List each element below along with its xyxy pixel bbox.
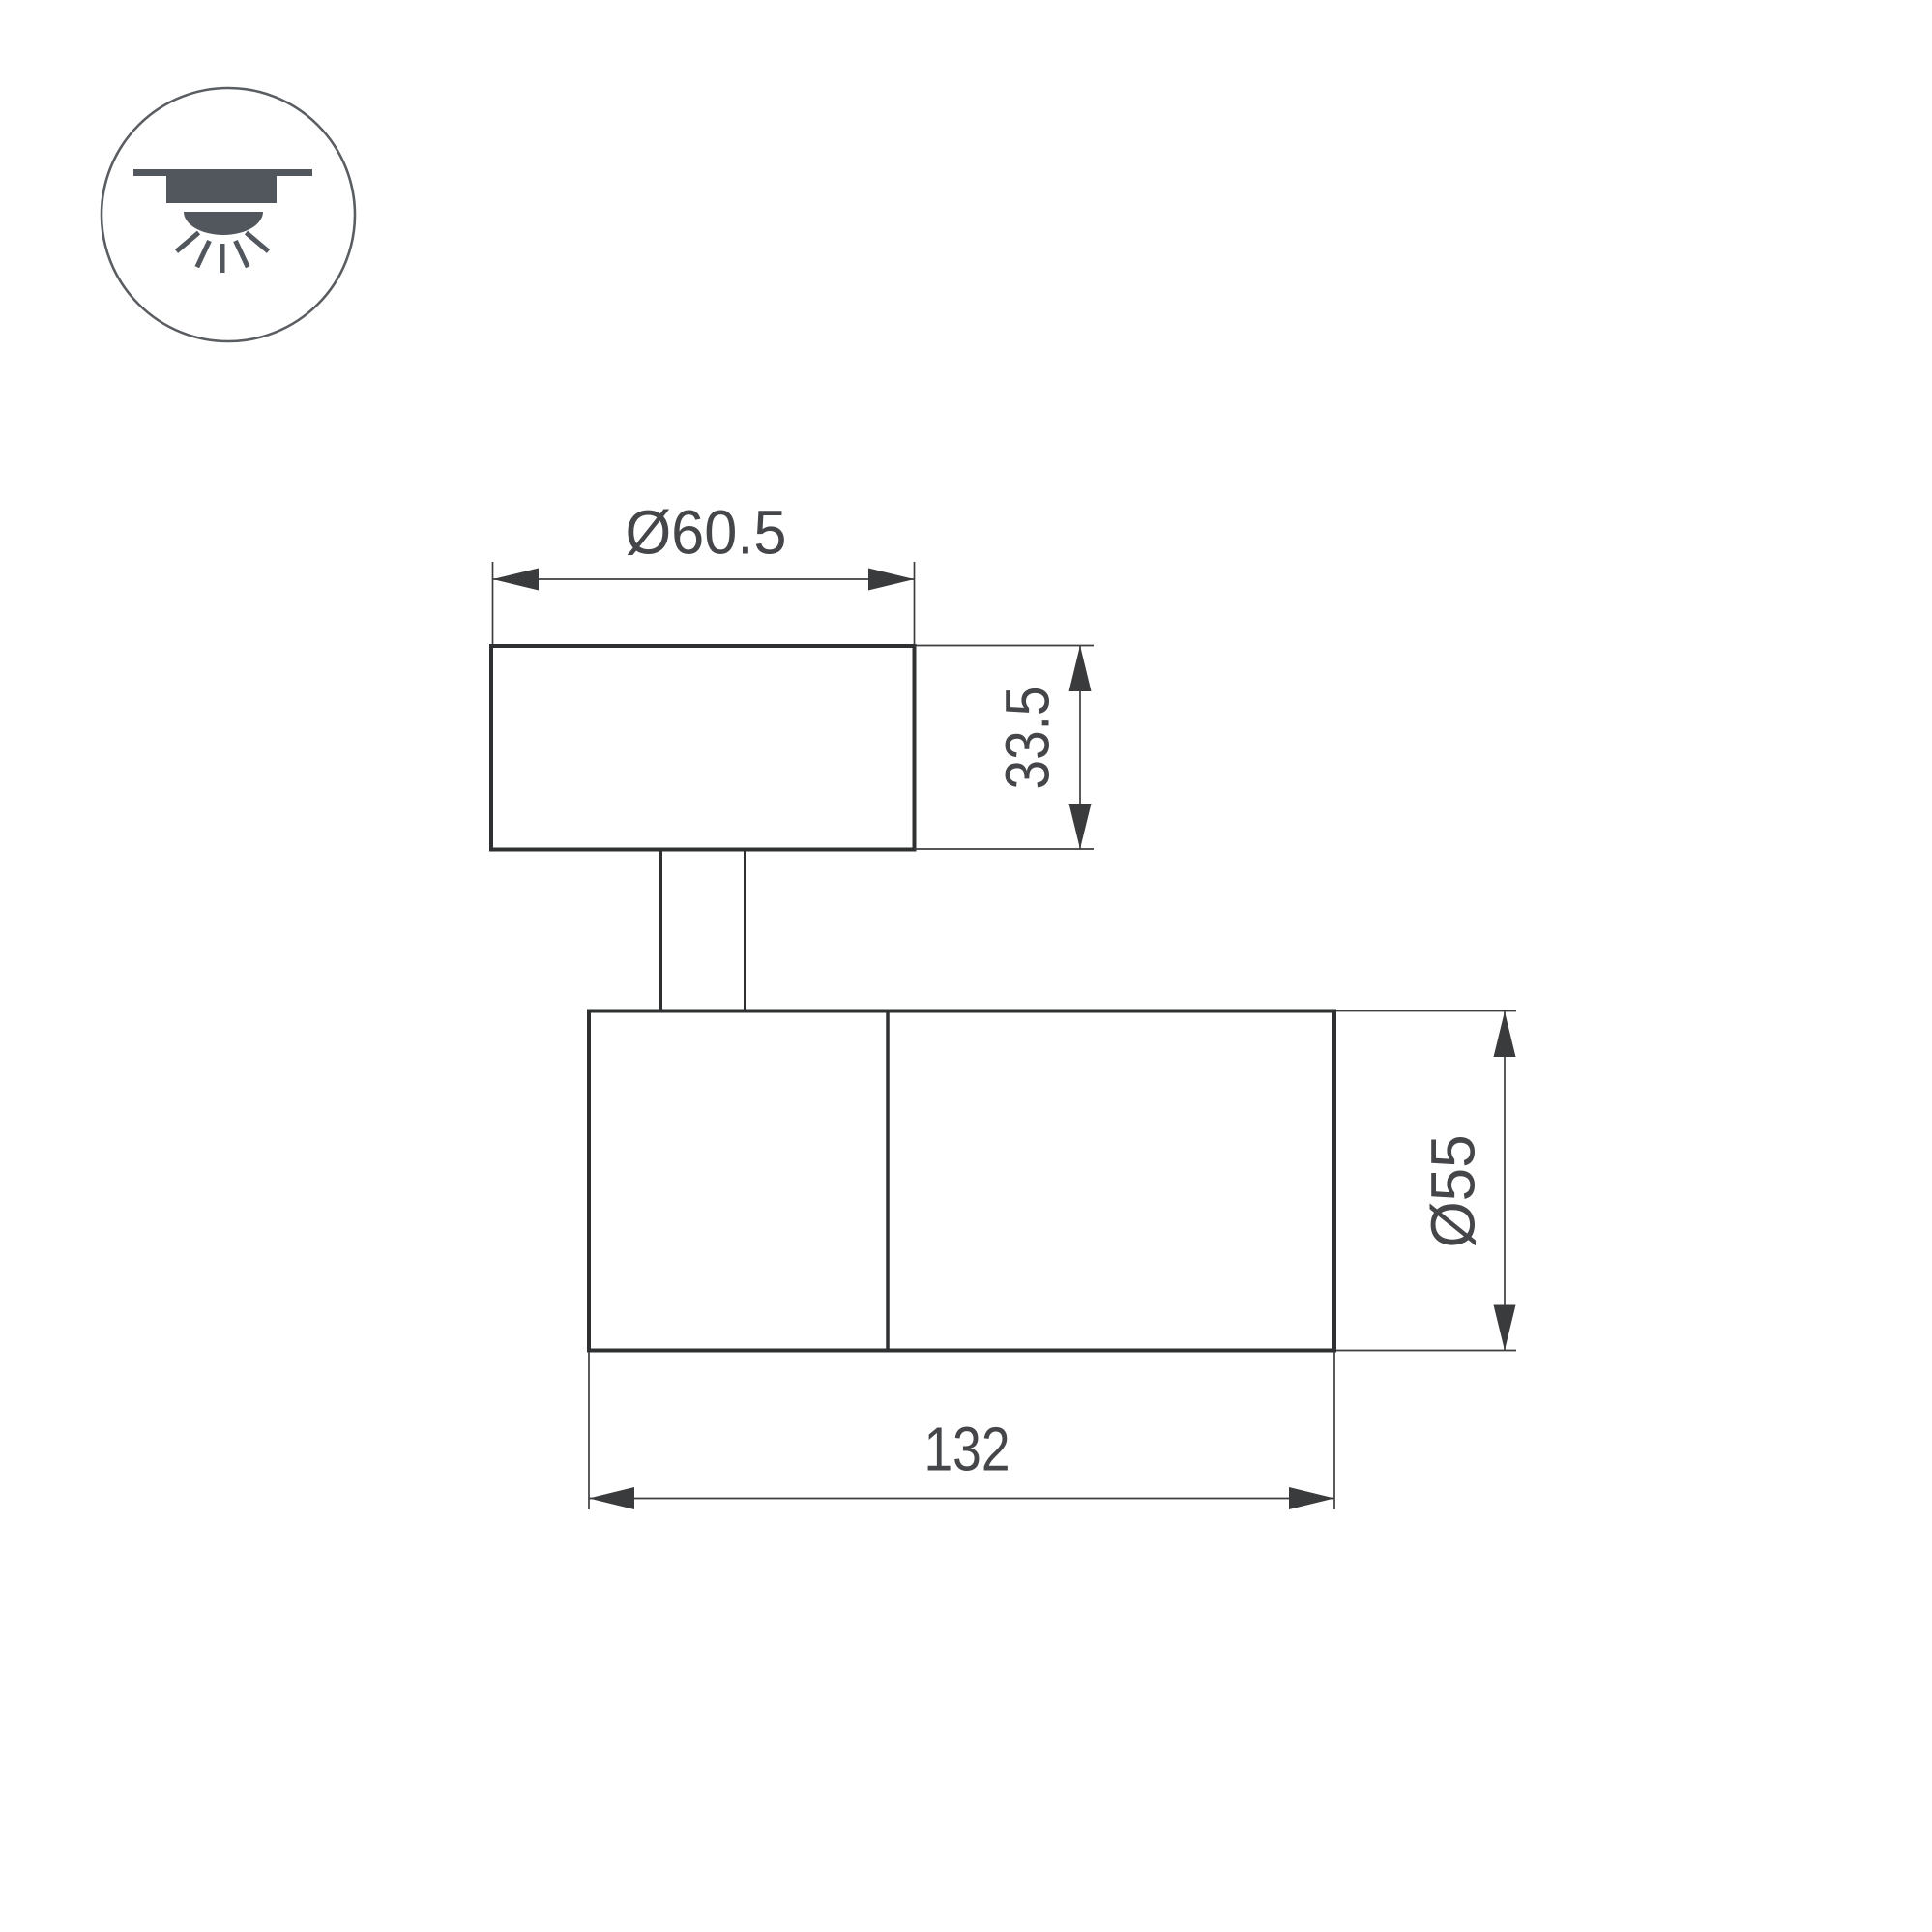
dimension-canopy-height: 33.5 bbox=[915, 646, 1094, 850]
fixture-drawing bbox=[491, 646, 1334, 1351]
dimension-label-body-diameter: Ø55 bbox=[1418, 1135, 1487, 1248]
arrowhead-left bbox=[493, 569, 540, 591]
fixture-base-icon bbox=[166, 176, 277, 203]
dimension-label-canopy-diameter: Ø60.5 bbox=[626, 497, 787, 567]
arrowhead-up bbox=[1069, 646, 1092, 692]
arrowhead-right bbox=[1289, 1487, 1334, 1509]
arrowhead-right bbox=[868, 569, 915, 591]
body-outline bbox=[589, 1011, 1334, 1351]
dimension-body-diameter: Ø55 bbox=[1336, 1011, 1516, 1351]
dimension-label-body-length: 132 bbox=[924, 1414, 1010, 1483]
dimension-body-length: 132 bbox=[589, 1352, 1334, 1509]
canopy-outline bbox=[491, 646, 915, 850]
dimension-canopy-diameter: Ø60.5 bbox=[493, 497, 915, 644]
arrowhead-left bbox=[589, 1487, 634, 1509]
arrowhead-down bbox=[1494, 1305, 1516, 1351]
arrowhead-down bbox=[1069, 804, 1092, 849]
dimension-drawing-canvas: Ø60.5 33.5 Ø55 132 bbox=[0, 0, 1932, 1932]
dimension-label-canopy-height: 33.5 bbox=[992, 687, 1062, 790]
surface-mount-light-icon bbox=[102, 88, 355, 341]
ceiling-line-icon bbox=[133, 169, 312, 176]
drawing-sheet: Ø60.5 33.5 Ø55 132 bbox=[0, 0, 1932, 1932]
arrowhead-up bbox=[1494, 1011, 1516, 1057]
